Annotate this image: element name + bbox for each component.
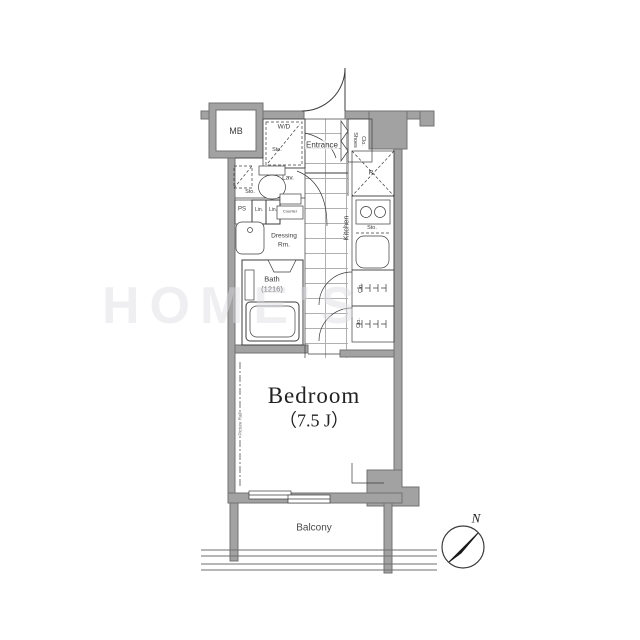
stove-icon	[356, 200, 390, 224]
balcony-divider-left	[230, 503, 238, 561]
compass-needle	[449, 533, 478, 562]
compass-icon	[442, 526, 484, 568]
washbasin-icon	[236, 222, 264, 254]
bath-folding-door	[268, 260, 296, 272]
watermark: HOME'S	[102, 276, 365, 336]
kitchen-label: Kitchen	[343, 215, 352, 240]
bath-bedroom-wall	[235, 345, 308, 353]
toilet-tank-icon	[259, 166, 285, 175]
lav-sto-box	[234, 166, 252, 188]
kitchen-counter	[352, 196, 394, 270]
counter-upper-box	[280, 194, 301, 204]
linen-2-label: Lin.	[269, 208, 277, 214]
compass-north-label: N	[472, 512, 481, 527]
dressing-room	[236, 222, 264, 254]
entrance-door-arc	[302, 68, 345, 111]
hall-bedroom-wall	[340, 350, 394, 357]
shoes-closet-label-2: Clo.	[360, 136, 366, 146]
balcony-divider-right	[384, 503, 392, 573]
bedroom-label: Bedroom	[268, 383, 361, 409]
dressing-room-label-2: Rm.	[278, 241, 290, 248]
shoes-closet-label-1: Shoes	[352, 132, 358, 148]
lav-sto-diagonal	[234, 166, 252, 188]
washer-sto-label: Sto.	[272, 147, 282, 153]
washer-dryer-label: W/D	[278, 123, 291, 130]
balcony-label: Balcony	[296, 522, 332, 534]
dressing-room-label-1: Dressing	[271, 232, 297, 239]
kitchen-sto-label: Sto.	[367, 225, 377, 231]
right-wall	[394, 149, 402, 473]
sink-icon	[356, 236, 389, 268]
counter-label: Counter	[283, 210, 297, 215]
top-right-column	[369, 111, 407, 149]
picture-rail-label: Picture Rail	[237, 412, 242, 435]
bedroom-size-label: （7.5 J）	[279, 411, 349, 432]
lav-sto-label: Sto.	[245, 189, 255, 195]
floor-plan-canvas: MB W/D Sto. Entrance Shoes Clo. Lav. Sto…	[0, 0, 640, 640]
ps-label: PS	[238, 207, 246, 214]
shoes-bifold-upper	[341, 121, 348, 141]
refrigerator-label: R.	[369, 169, 376, 176]
compass-circle	[442, 526, 484, 568]
top-right-step	[420, 111, 434, 126]
linen-1-label: Lin.	[255, 208, 263, 214]
structural-walls	[201, 111, 434, 573]
shoes-bifold-lower	[341, 141, 348, 161]
mb-label: MB	[229, 126, 243, 136]
lavatory-label: Lav.	[282, 174, 294, 181]
entrance-label: Entrance	[305, 140, 339, 149]
